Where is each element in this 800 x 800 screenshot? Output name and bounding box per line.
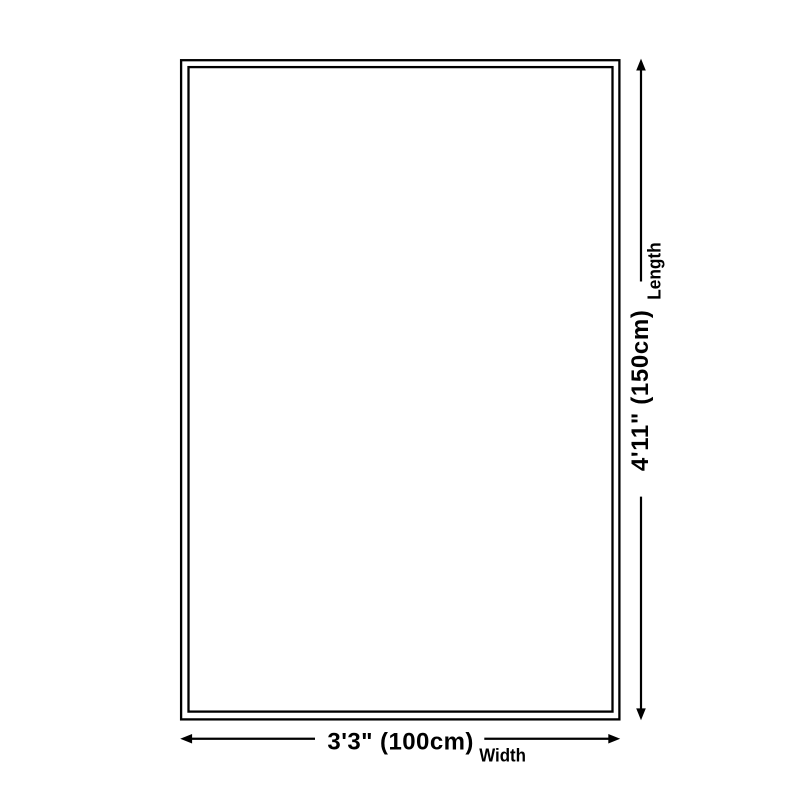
- svg-text:Width: Width: [479, 746, 526, 766]
- svg-text:Length: Length: [644, 242, 664, 300]
- svg-text:3'3" (100cm): 3'3" (100cm): [327, 728, 473, 755]
- svg-text:4'11" (150cm): 4'11" (150cm): [627, 310, 654, 471]
